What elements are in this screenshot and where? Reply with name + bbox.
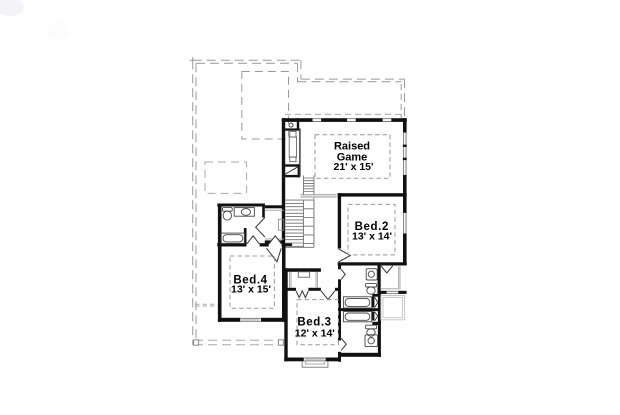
svg-text:21' x 15': 21' x 15' (333, 161, 373, 173)
svg-text:13' x 14': 13' x 14' (352, 230, 392, 242)
svg-text:13' x 15': 13' x 15' (231, 283, 271, 295)
svg-text:12' x 14': 12' x 14' (295, 327, 335, 339)
